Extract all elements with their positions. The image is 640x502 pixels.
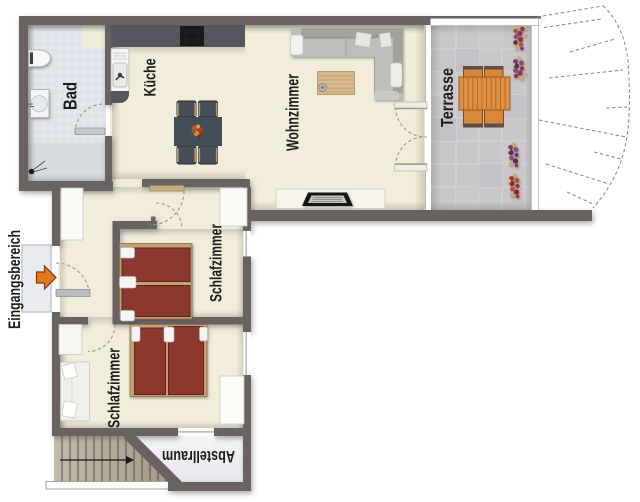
svg-text:Terrasse: Terrasse — [437, 68, 457, 127]
svg-text:Küche: Küche — [141, 59, 160, 97]
svg-text:Wohnzimmer: Wohnzimmer — [283, 74, 303, 151]
svg-text:Eingangsbereich: Eingangsbereich — [5, 230, 24, 329]
svg-text:Schlafzimmer: Schlafzimmer — [105, 348, 124, 428]
svg-text:Bad: Bad — [61, 82, 81, 110]
svg-text:Abstellraum: Abstellraum — [162, 447, 235, 465]
svg-text:Schlafzimmer: Schlafzimmer — [207, 224, 226, 302]
